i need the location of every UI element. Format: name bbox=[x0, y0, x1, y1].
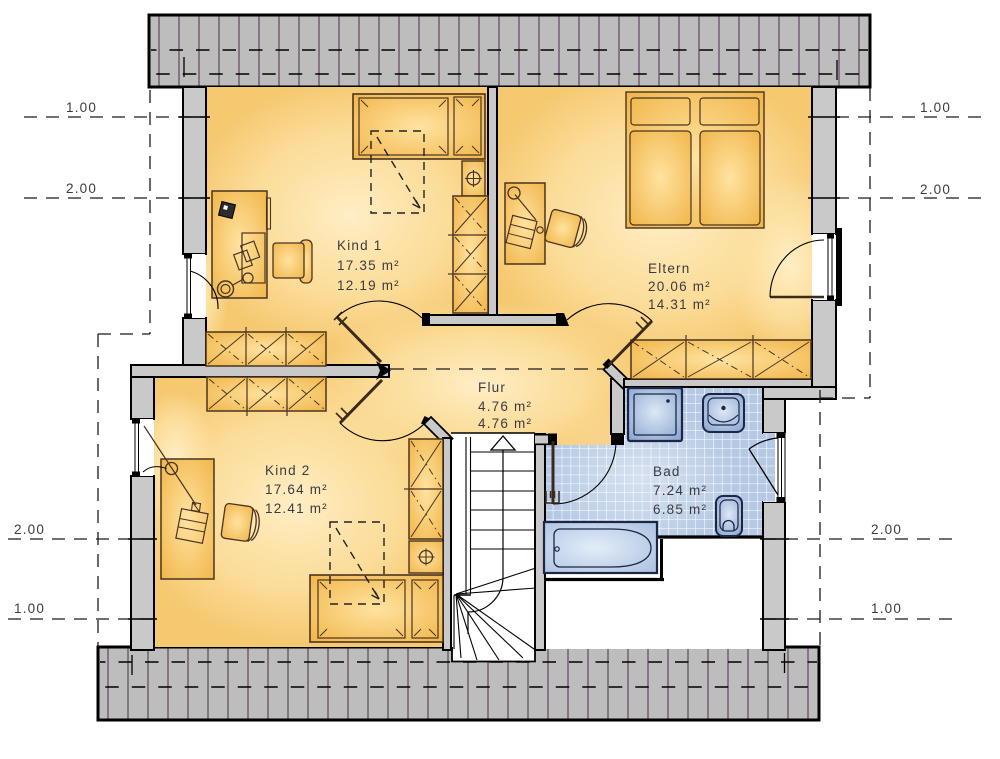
svg-text:1.00: 1.00 bbox=[14, 601, 45, 616]
svg-text:2.00: 2.00 bbox=[871, 522, 902, 537]
svg-text:12.41 m²: 12.41 m² bbox=[265, 501, 328, 516]
svg-text:1.00: 1.00 bbox=[871, 601, 902, 616]
svg-text:17.35 m²: 17.35 m² bbox=[337, 258, 400, 273]
svg-text:1.00: 1.00 bbox=[66, 100, 97, 115]
svg-text:20.06 m²: 20.06 m² bbox=[648, 279, 711, 294]
svg-text:Kind 1: Kind 1 bbox=[337, 238, 382, 253]
svg-text:6.85 m²: 6.85 m² bbox=[653, 502, 707, 517]
svg-text:Kind 2: Kind 2 bbox=[265, 463, 310, 478]
svg-text:4.76 m²: 4.76 m² bbox=[478, 416, 532, 431]
svg-text:12.19 m²: 12.19 m² bbox=[337, 278, 400, 293]
svg-text:2.00: 2.00 bbox=[66, 181, 97, 196]
svg-text:4.76 m²: 4.76 m² bbox=[478, 399, 532, 414]
svg-text:Eltern: Eltern bbox=[648, 261, 690, 276]
svg-text:2.00: 2.00 bbox=[920, 182, 951, 197]
svg-text:2.00: 2.00 bbox=[14, 522, 45, 537]
svg-text:Flur: Flur bbox=[478, 380, 506, 395]
svg-text:1.00: 1.00 bbox=[920, 100, 951, 115]
svg-text:7.24 m²: 7.24 m² bbox=[653, 483, 707, 498]
svg-text:17.64 m²: 17.64 m² bbox=[265, 482, 328, 497]
svg-text:14.31 m²: 14.31 m² bbox=[648, 297, 711, 312]
svg-text:Bad: Bad bbox=[653, 464, 681, 479]
